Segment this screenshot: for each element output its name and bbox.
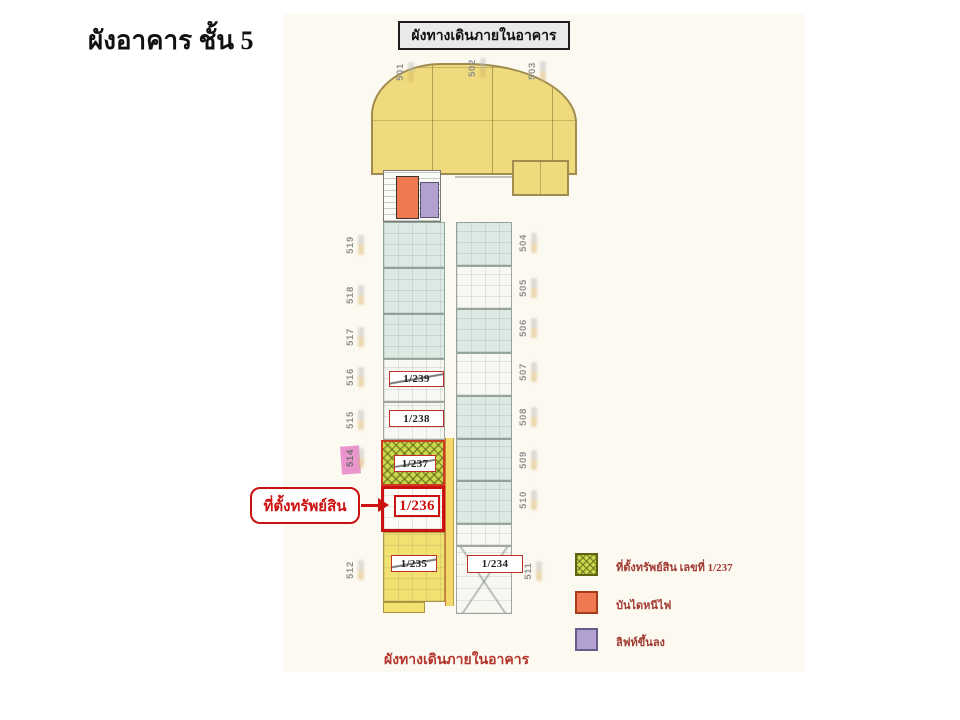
room-label-517: 517 <box>345 320 357 354</box>
room-small-hall <box>456 524 512 546</box>
room-506 <box>456 309 512 353</box>
legend-label-elevator: ลิฟท์ขึ้นลง <box>616 633 665 651</box>
room-label-502: 502 <box>467 51 479 85</box>
room-label-515: 515 <box>345 403 357 437</box>
elevator <box>420 182 439 218</box>
callout-arrow-line <box>361 504 379 507</box>
unit-box-234: 1/234 <box>467 555 523 573</box>
room-517 <box>383 314 445 359</box>
room-508 <box>456 396 512 439</box>
room-507 <box>456 353 512 396</box>
property-location-callout-label: ที่ตั้งทรัพย์สิน <box>264 494 347 518</box>
corridor-plan-label: ผังทางเดินภายในอาคาร <box>411 25 556 47</box>
room-label-509: 509 <box>518 443 530 477</box>
arch-section-extension <box>512 160 569 196</box>
room-label-519: 519 <box>345 228 357 262</box>
room-519 <box>383 222 445 268</box>
corridor-wall-line <box>455 176 512 178</box>
room-504 <box>456 222 512 266</box>
room-510 <box>456 481 512 524</box>
fire-escape-stair <box>396 176 419 219</box>
room-label-518: 518 <box>345 278 357 312</box>
room-label-503: 503 <box>527 54 539 88</box>
unit-box-237: 1/237 <box>394 455 436 472</box>
yellow-step-block <box>383 602 425 613</box>
room-509 <box>456 439 512 481</box>
property-location-callout: ที่ตั้งทรัพย์สิน <box>250 487 360 524</box>
room-label-508: 508 <box>518 400 530 434</box>
room-label-514: 514 <box>345 441 357 475</box>
room-518 <box>383 268 445 314</box>
room-label-510: 510 <box>518 483 530 517</box>
legend-swatch-property <box>575 553 598 576</box>
legend-swatch-fire-escape <box>575 591 598 614</box>
callout-arrow-head <box>378 498 389 512</box>
room-label-504: 504 <box>518 226 530 260</box>
legend-label-fire-escape: บันไดหนีไฟ <box>616 596 671 614</box>
room-label-512: 512 <box>345 553 357 587</box>
room-label-516: 516 <box>345 360 357 394</box>
floor-plan-page: ผังอาคาร ชั้น 5 ผังทางเดินภายในอาคาร 501… <box>0 0 960 720</box>
room-label-511: 511 <box>523 554 535 588</box>
unit-box-238: 1/238 <box>389 410 444 427</box>
page-title: ผังอาคาร ชั้น 5 <box>88 20 254 61</box>
corridor-plan-label-box: ผังทางเดินภายในอาคาร <box>398 21 570 50</box>
legend-swatch-elevator <box>575 628 598 651</box>
legend-label-property: ที่ตั้งทรัพย์สิน เลขที่ 1/237 <box>616 558 733 576</box>
unit-box-236: 1/236 <box>394 495 440 517</box>
bottom-caption: ผังทางเดินภายในอาคาร <box>384 649 529 671</box>
room-label-507: 507 <box>518 355 530 389</box>
room-label-505: 505 <box>518 271 530 305</box>
corridor-highlight-strip <box>445 438 454 606</box>
room-label-501: 501 <box>395 55 407 89</box>
room-label-506: 506 <box>518 311 530 345</box>
unit-box-239: 1/239 <box>389 371 444 387</box>
room-505 <box>456 266 512 309</box>
unit-box-235: 1/235 <box>391 555 437 572</box>
